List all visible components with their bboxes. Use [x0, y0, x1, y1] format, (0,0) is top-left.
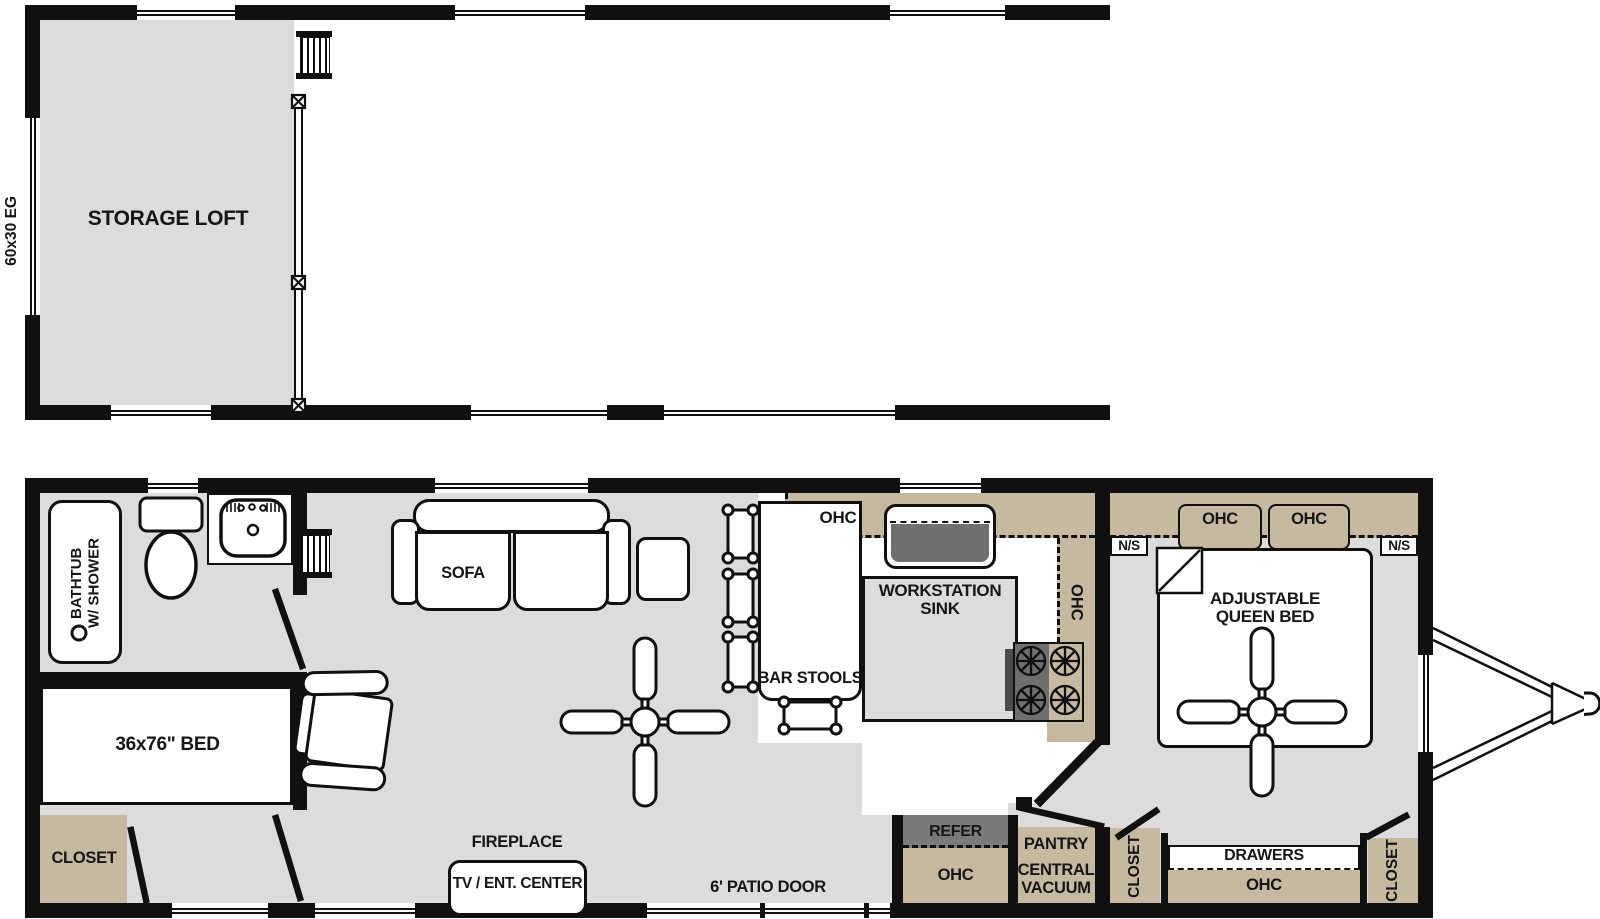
- window: [172, 903, 268, 918]
- fireplace-label: FIREPLACE: [437, 834, 597, 852]
- trailer-hitch: [1433, 628, 1600, 780]
- main-wall-top: [25, 478, 1433, 493]
- stub: [1161, 833, 1168, 903]
- tv-label: TV / ENT. CENTER: [450, 875, 585, 893]
- patio-door-mullion: [864, 903, 869, 918]
- stub: [1095, 827, 1110, 903]
- loft-window: [137, 5, 235, 20]
- bathroom-wall-bottom: [40, 672, 307, 686]
- storage-loft-label: STORAGE LOFT: [60, 206, 276, 232]
- cooktop: [1013, 642, 1084, 722]
- kitchen-sink-dash: [890, 521, 990, 523]
- kitchen-floor: [862, 743, 1008, 815]
- bar-stools-label: BAR STOOLS: [758, 669, 862, 689]
- bedroom-ohc-left-label: OHC: [1178, 511, 1262, 529]
- loft-railing: [294, 100, 303, 405]
- window: [435, 478, 588, 493]
- patio-door-mullion: [760, 903, 765, 918]
- stub: [1360, 833, 1367, 903]
- sofa-back: [413, 499, 610, 533]
- queen-bed: [1157, 548, 1373, 748]
- pantry-label: PANTRY: [1016, 836, 1096, 854]
- loft-ladder: [300, 37, 330, 75]
- refer-label: REFER: [903, 823, 1008, 840]
- hall-closet-label: CLOSET: [1112, 830, 1158, 902]
- central-vacuum-label: CENTRAL VACUUM: [1016, 862, 1096, 898]
- floorplan-canvas: STORAGE LOFT 60x30 EG BATHTUB W/ SHOWER …: [0, 0, 1600, 919]
- kitchen-sink-basin: [891, 524, 989, 562]
- loft-ladder-cap: [296, 73, 332, 79]
- loft-window: [890, 5, 1005, 20]
- main-wall-left: [25, 478, 40, 918]
- bathtub-label: BATHTUB W/ SHOWER: [50, 505, 120, 660]
- bedroom-ohc-right-label: OHC: [1268, 511, 1350, 529]
- rear-closet-label: CLOSET: [1370, 838, 1416, 902]
- sofa-label: SOFA: [415, 564, 511, 583]
- ohc-under-refer-label: OHC: [903, 867, 1008, 885]
- sofa-seat: [513, 531, 609, 611]
- kitchen-ohc-side-label: OHC: [1057, 556, 1095, 648]
- patio-door-label: 6' PATIO DOOR: [688, 879, 848, 897]
- stub: [892, 815, 903, 903]
- cooktop-counter-patch: [1047, 721, 1083, 742]
- front-closet-label: CLOSET: [42, 849, 126, 868]
- workstation-sink-label: WORKSTATION SINK: [862, 578, 1018, 622]
- loft-window: [111, 405, 211, 420]
- open-to-below-area: [303, 20, 1110, 405]
- patio-door: [647, 903, 890, 918]
- bathroom-sink-counter: [207, 493, 293, 565]
- loft-window: [25, 118, 40, 315]
- kitchen-ohc-top-label: OHC: [798, 508, 878, 528]
- window: [315, 903, 415, 918]
- loft-window: [471, 405, 607, 420]
- window: [900, 478, 981, 493]
- ns-left-label: N/S: [1110, 537, 1148, 555]
- window: [1418, 655, 1433, 752]
- drawers-label: DRAWERS: [1168, 846, 1360, 865]
- loft-window: [664, 405, 895, 420]
- front-bed-label: 36x76" BED: [60, 734, 275, 756]
- ladder-cap: [296, 572, 332, 578]
- ladder-to-loft: [300, 535, 330, 574]
- queen-bed-label: ADJUSTABLE QUEEN BED: [1160, 588, 1370, 628]
- ns-right-label: N/S: [1380, 537, 1418, 555]
- loft-window: [455, 5, 585, 20]
- end-table: [636, 537, 690, 601]
- bedroom-ohc-band: [1110, 493, 1418, 538]
- window: [148, 478, 198, 493]
- front-bedroom-wall: [293, 686, 307, 810]
- model-size-label: 60x30 EG: [0, 186, 24, 276]
- ohc-under-drawers-label: OHC: [1168, 877, 1360, 895]
- kitchen-bedroom-wall: [1095, 493, 1110, 745]
